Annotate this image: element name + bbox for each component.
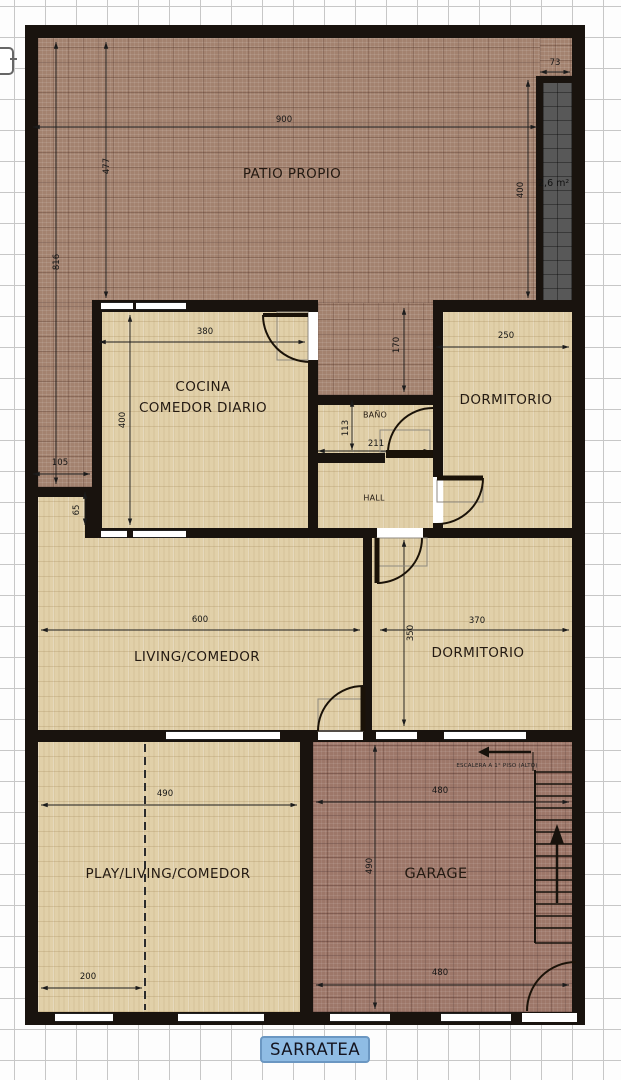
floor-plan-canvas: 900 477 816 400 73 105 65 170 380 400 11… bbox=[0, 0, 621, 1080]
dim-cocina-width: 380 bbox=[197, 327, 213, 337]
dim-patio-depth: 477 bbox=[102, 158, 112, 174]
room-label-garage: GARAGE bbox=[404, 866, 467, 882]
dim-living-width: 600 bbox=[192, 615, 208, 625]
dim-shaft-height: 400 bbox=[516, 182, 526, 198]
dim-left-side-depth: 816 bbox=[52, 254, 62, 270]
dim-garage-width-bottom: 480 bbox=[432, 968, 448, 978]
room-label-hall: HALL bbox=[363, 494, 384, 503]
door-arc-living bbox=[318, 686, 363, 731]
room-label-cocina-2: COMEDOR DIARIO bbox=[139, 400, 267, 416]
door-leaf-banio bbox=[386, 450, 433, 458]
dim-cocina-depth: 400 bbox=[118, 412, 128, 428]
dim-patio-width: 900 bbox=[276, 115, 292, 125]
edge-marker-tick bbox=[10, 58, 17, 60]
room-label-dorm2: DORMITORIO bbox=[432, 645, 525, 661]
dim-dorm1-width: 250 bbox=[498, 331, 514, 341]
dim-shaft-width: 73 bbox=[550, 58, 561, 68]
dim-dorm2-depth: 350 bbox=[406, 625, 416, 641]
shaft-area-note: 2,6 m² bbox=[538, 178, 569, 189]
dim-patio-left-width: 105 bbox=[52, 458, 68, 468]
plan-annotations-overlay bbox=[0, 0, 621, 1080]
room-label-cocina-1: COCINA bbox=[175, 379, 230, 395]
dim-garage-depth: 490 bbox=[365, 858, 375, 874]
door-arc-cocina bbox=[263, 315, 310, 362]
door-arc-dorm2 bbox=[377, 538, 422, 583]
dim-garage-width-top: 480 bbox=[432, 786, 448, 796]
staircase bbox=[535, 770, 572, 943]
room-label-living: LIVING/COMEDOR bbox=[134, 649, 260, 665]
room-label-banio: BAÑO bbox=[363, 411, 387, 420]
dim-play-offset: 200 bbox=[80, 972, 96, 982]
stairs-note: ESCALERA A 1° PISO (ALTO) bbox=[456, 763, 537, 769]
street-label: SARRATEA bbox=[260, 1036, 370, 1063]
dim-play-width: 490 bbox=[157, 789, 173, 799]
door-arc-dorm1 bbox=[437, 478, 483, 524]
room-label-patio: PATIO PROPIO bbox=[243, 166, 341, 182]
room-label-dorm1: DORMITORIO bbox=[460, 392, 553, 408]
dim-banio-depth: 113 bbox=[341, 420, 351, 436]
dim-patio-mid-depth: 170 bbox=[392, 337, 402, 353]
dimension-lines bbox=[33, 42, 570, 1009]
edge-marker-symbol bbox=[0, 47, 14, 75]
door-symbols bbox=[263, 315, 576, 1011]
dim-step-height: 65 bbox=[72, 505, 82, 516]
stairs-up-arrow-icon bbox=[550, 824, 564, 903]
room-label-play: PLAY/LIVING/COMEDOR bbox=[85, 866, 250, 882]
dim-banio-width: 211 bbox=[368, 439, 384, 449]
dim-dorm2-width: 370 bbox=[469, 616, 485, 626]
door-arc-garage bbox=[527, 962, 576, 1011]
